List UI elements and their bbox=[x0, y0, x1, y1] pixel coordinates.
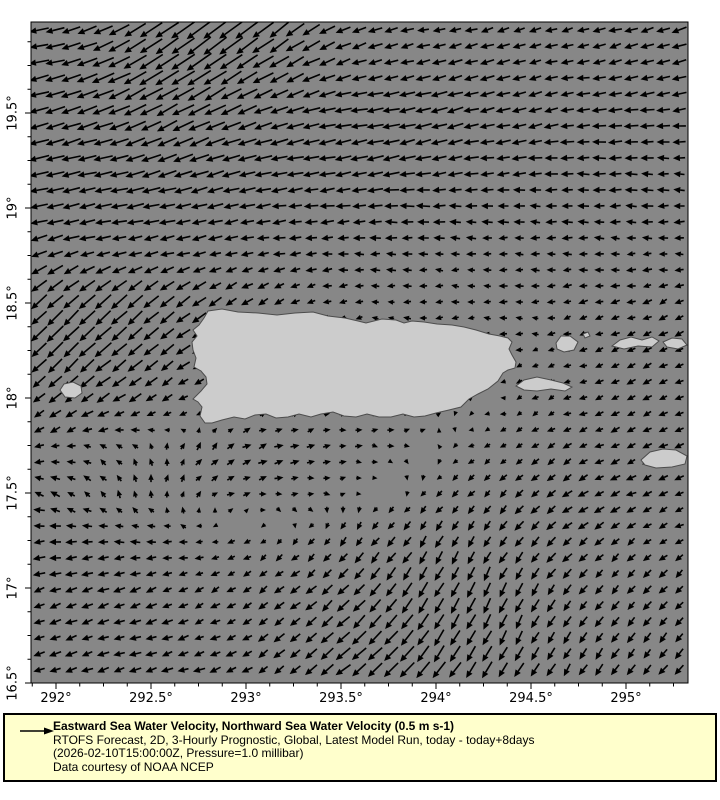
legend-box: Eastward Sea Water Velocity, Northward S… bbox=[3, 713, 717, 782]
y-tick-label: 17° bbox=[6, 576, 21, 599]
y-tick-label: 18° bbox=[6, 386, 21, 409]
legend-time-line: (2026-02-10T15:00:00Z, Pressure=1.0 mill… bbox=[53, 747, 709, 761]
x-tick-label: 294° bbox=[420, 691, 451, 706]
x-tick-label: 293° bbox=[230, 691, 261, 706]
x-tick-label: 295° bbox=[610, 691, 641, 706]
nowcoast-map-view: 292°292.5°293°293.5°294°294.5°295° 16.5°… bbox=[0, 0, 720, 800]
y-tick-label: 17.5° bbox=[6, 475, 21, 510]
legend-credit-line: Data courtesy of NOAA NCEP bbox=[53, 761, 709, 775]
x-tick-label: 292° bbox=[40, 691, 71, 706]
x-tick-label: 292.5° bbox=[129, 691, 173, 706]
x-tick-label: 294.5° bbox=[509, 691, 553, 706]
y-axis: 16.5°17°17.5°18°18.5°19°19.5° bbox=[6, 42, 32, 701]
x-tick-label: 293.5° bbox=[319, 691, 363, 706]
y-tick-label: 19° bbox=[6, 196, 21, 219]
y-tick-label: 18.5° bbox=[6, 285, 21, 320]
reference-arrow-icon bbox=[20, 726, 54, 736]
y-tick-label: 19.5° bbox=[6, 95, 21, 130]
y-tick-label: 16.5° bbox=[6, 665, 21, 700]
legend-model-line: RTOFS Forecast, 2D, 3-Hourly Prognostic,… bbox=[53, 734, 709, 748]
legend-title: Eastward Sea Water Velocity, Northward S… bbox=[53, 720, 709, 734]
x-axis: 292°292.5°293°293.5°294°294.5°295° bbox=[32, 683, 673, 706]
quiver-map-plot: 292°292.5°293°293.5°294°294.5°295° 16.5°… bbox=[0, 0, 720, 712]
